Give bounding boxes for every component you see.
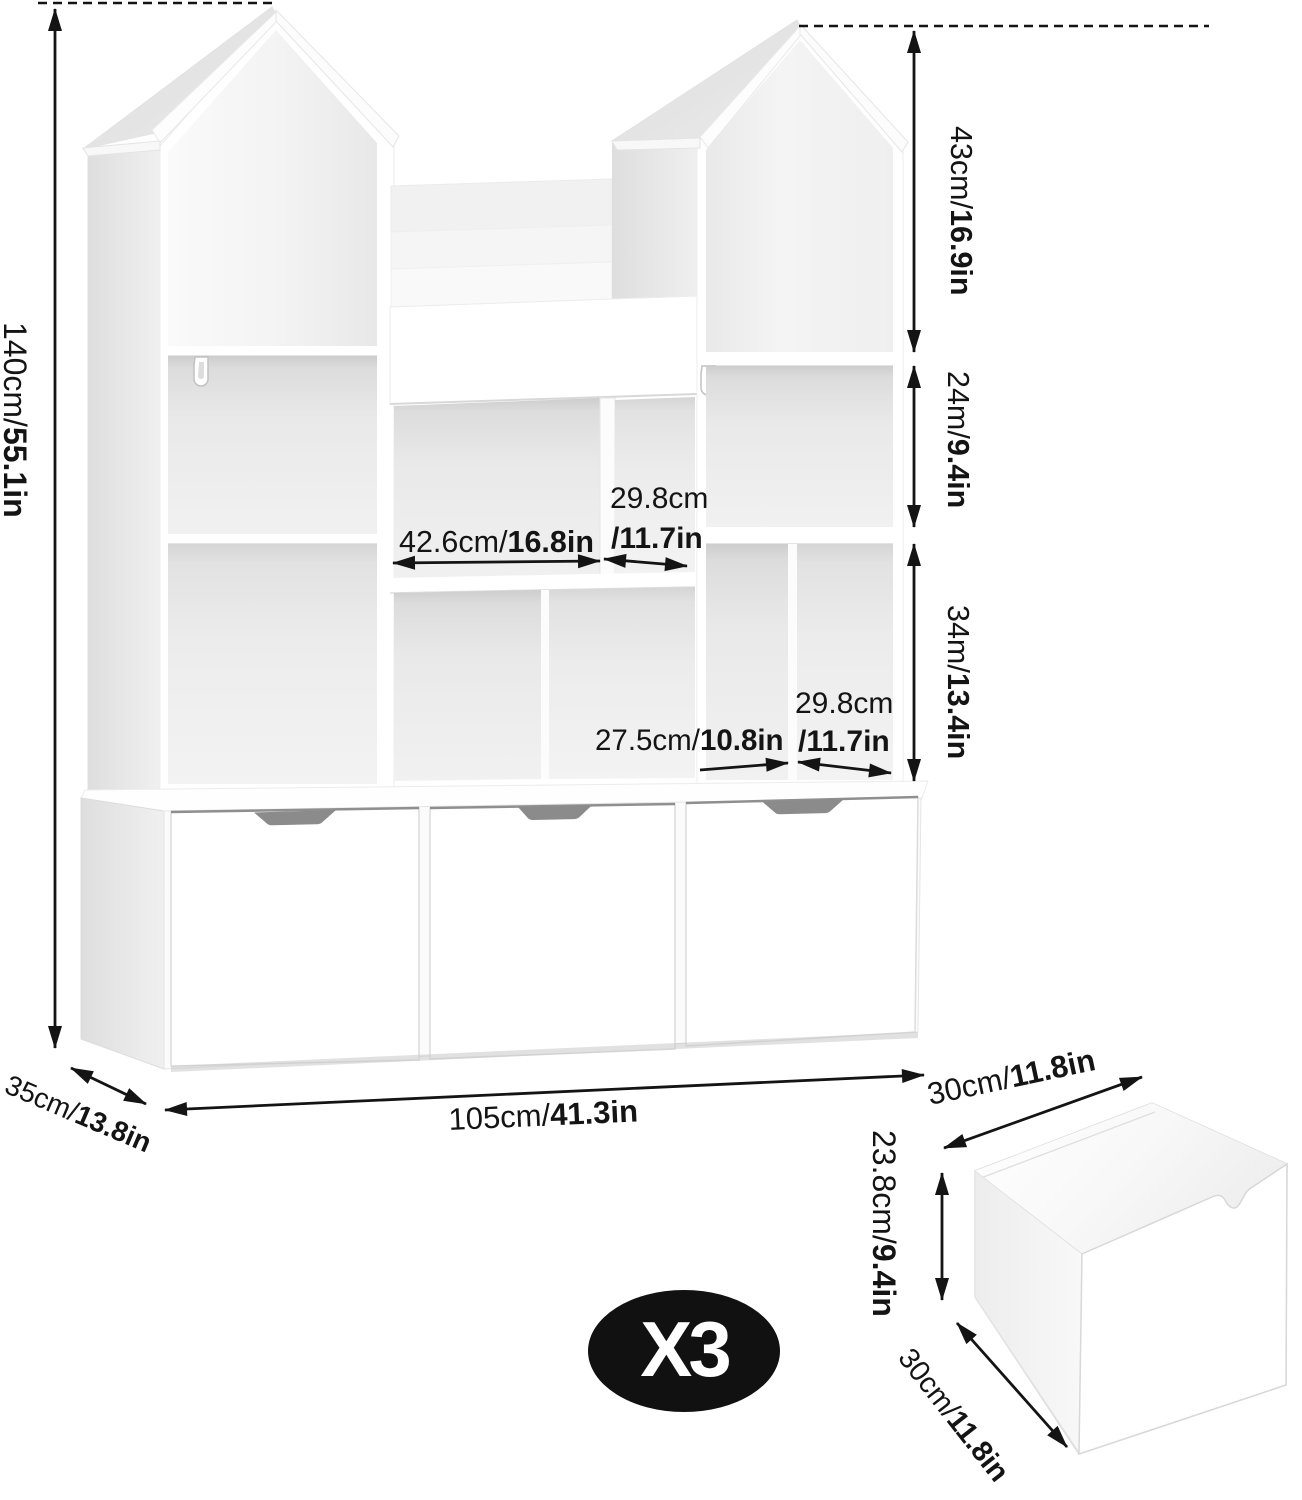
svg-text:23.8cm/9.4in: 23.8cm/9.4in (866, 1130, 902, 1317)
svg-text:34m/13.4in: 34m/13.4in (941, 605, 975, 759)
svg-text:140cm/55.1in: 140cm/55.1in (0, 322, 33, 518)
svg-text:27.5cm/10.8in: 27.5cm/10.8in (595, 724, 784, 757)
svg-text:X3: X3 (640, 1305, 729, 1393)
svg-text:29.8cm: 29.8cm (610, 482, 708, 515)
svg-text:43cm/16.9in: 43cm/16.9in (944, 126, 978, 296)
svg-text:24m/9.4in: 24m/9.4in (941, 371, 975, 508)
svg-text:42.6cm/16.8in: 42.6cm/16.8in (399, 525, 594, 559)
svg-text:29.8cm: 29.8cm (795, 687, 893, 720)
svg-text:/11.7in: /11.7in (798, 725, 890, 758)
svg-text:/11.7in: /11.7in (611, 522, 703, 555)
